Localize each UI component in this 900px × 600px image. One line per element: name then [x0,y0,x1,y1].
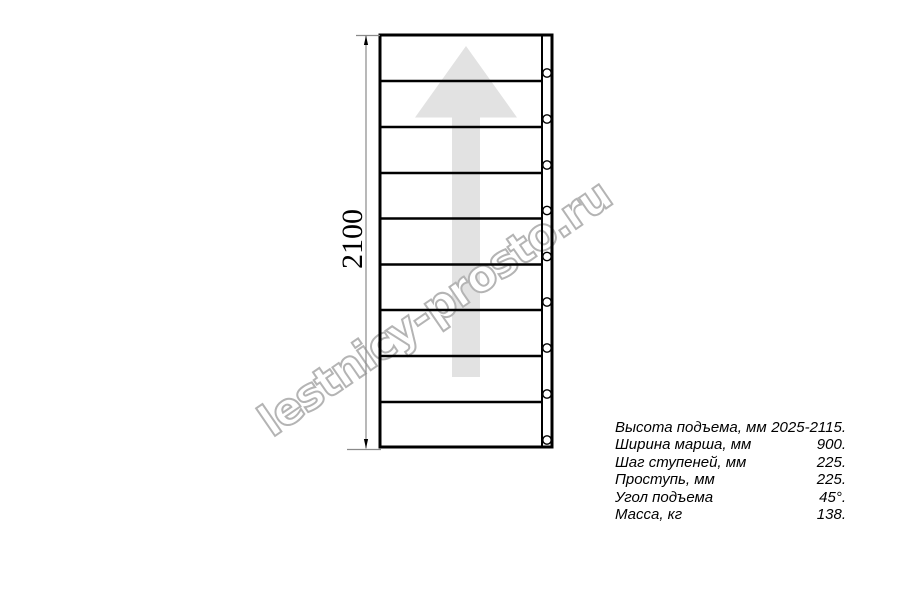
dimension-arrowhead-down-icon [364,439,368,449]
spec-label: Угол подъема [615,489,713,506]
spec-label: Высота подъема, мм [615,419,767,436]
dimension-arrowhead-up-icon [364,36,368,46]
spec-value: 225. [817,454,846,471]
spec-value: 900. [817,436,846,453]
mounting-hole [543,344,551,352]
mounting-hole [543,206,551,214]
spec-row: Проступь, мм 225. [615,471,846,488]
mounting-holes [543,69,551,444]
spec-row: Угол подъема 45°. [615,489,846,506]
spec-value: 225. [817,471,846,488]
mounting-hole [543,390,551,398]
spec-value: 2025-2115. [771,419,846,436]
spec-label: Проступь, мм [615,471,715,488]
mounting-hole [543,298,551,306]
spec-label: Масса, кг [615,506,682,523]
spec-value: 45°. [819,489,846,506]
mounting-hole [543,161,551,169]
mounting-hole [543,252,551,260]
mounting-hole [543,436,551,444]
spec-row: Шаг ступеней, мм 225. [615,454,846,471]
spec-label: Ширина марша, мм [615,436,751,453]
spec-value: 138. [817,506,846,523]
dimension-label: 2100 [336,209,369,269]
spec-label: Шаг ступеней, мм [615,454,746,471]
spec-row: Ширина марша, мм 900. [615,436,846,453]
watermark-text: lestnicy-prosto.ru [249,170,620,447]
mounting-hole [543,115,551,123]
mounting-hole [543,69,551,77]
specs-table: Высота подъема, мм 2025-2115. Ширина мар… [615,419,846,523]
spec-row: Высота подъема, мм 2025-2115. [615,419,846,436]
page-canvas: lestnicy-prosto.ru [0,0,900,600]
spec-row: Масса, кг 138. [615,506,846,523]
